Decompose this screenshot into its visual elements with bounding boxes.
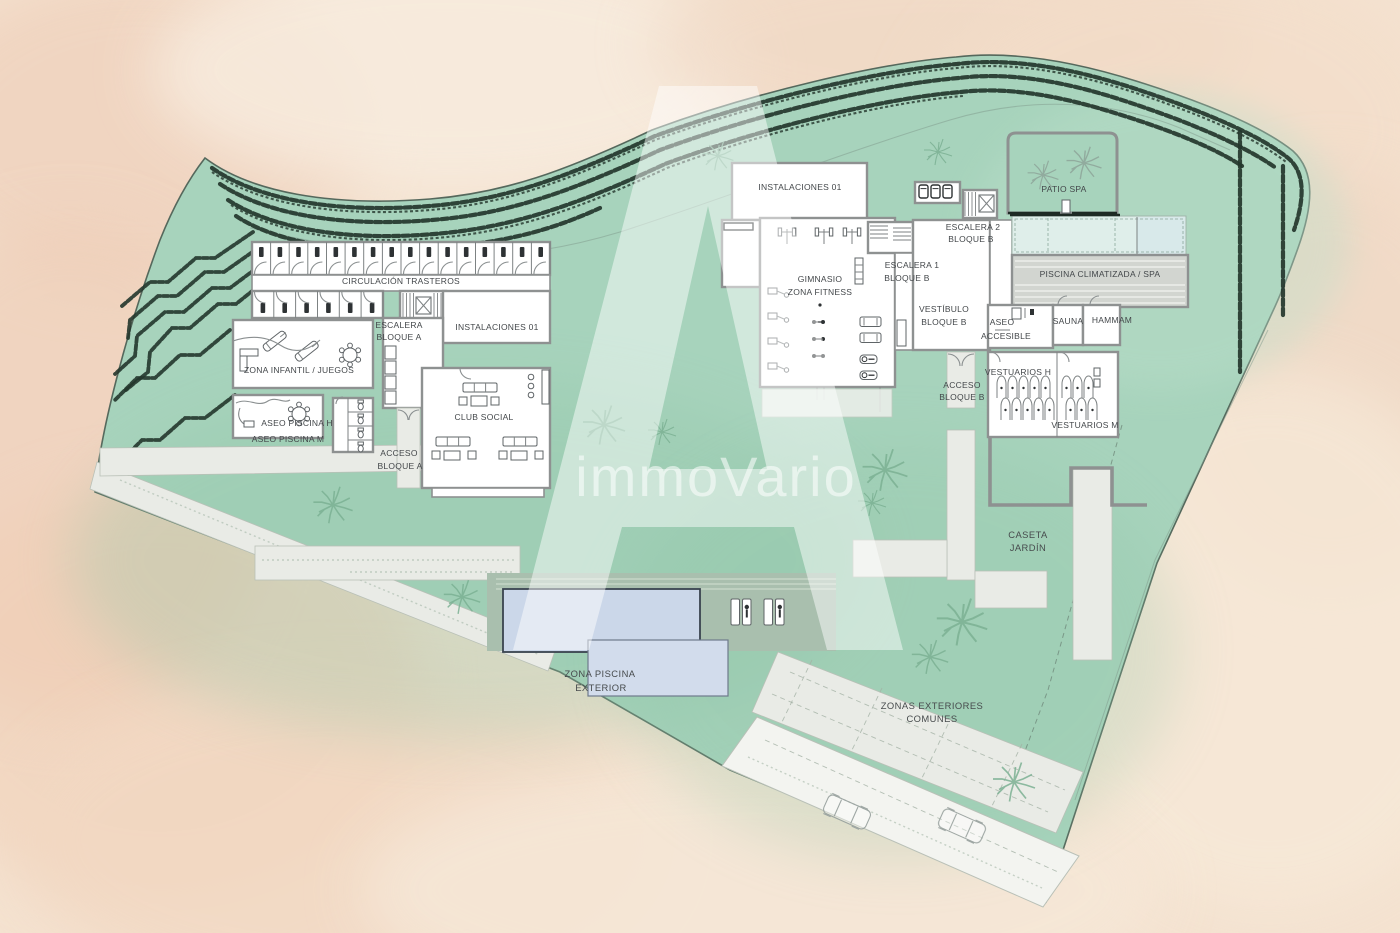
room-hammam [1083, 305, 1120, 345]
bench-icon [897, 320, 906, 346]
patio-gate [1062, 200, 1070, 213]
path-under-block-a [100, 445, 425, 476]
room-instalaciones-a [443, 291, 550, 343]
label-caseta-2: JARDÍN [1010, 542, 1047, 553]
label-escalera-a-1: ESCALERA [375, 320, 422, 330]
label-vestuarios-h: VESTUARIOS H [985, 367, 1051, 377]
bin-icons [919, 185, 952, 198]
indoor-pool-end [1137, 217, 1185, 254]
site-plan-canvas: immoVario CIRCULACIÓN TRASTEROS ESCALERA… [0, 0, 1400, 933]
label-vestibulo-1: VESTÍBULO [919, 304, 969, 314]
label-gimnasio-1: GIMNASIO [798, 274, 843, 284]
label-aseo-piscina-h: ASEO PISCINA H [261, 418, 333, 428]
path-caseta-south [975, 571, 1047, 608]
stairwell-1-block-b [868, 222, 913, 253]
label-instalaciones-b: INSTALACIONES 01 [758, 182, 841, 192]
room-piscina-climatizada [1012, 255, 1188, 307]
label-aseo-accesible-1: ASEO [990, 317, 1015, 327]
corridor-spa [990, 220, 1012, 305]
path-mid [255, 546, 520, 580]
label-club-social: CLUB SOCIAL [455, 412, 514, 422]
path-caseta-east [1073, 468, 1112, 660]
label-circulacion-trasteros: CIRCULACIÓN TRASTEROS [342, 276, 460, 286]
elevator-block-b-icon [979, 195, 994, 212]
label-acceso-a-2: BLOQUE A [378, 461, 423, 471]
label-zonas-exteriores-2: COMUNES [906, 713, 957, 724]
label-caseta-1: CASETA [1008, 529, 1048, 540]
label-acceso-b-2: BLOQUE B [939, 392, 985, 402]
label-aseo-piscina-m: ASEO PISCINA M [252, 434, 324, 444]
label-hammam: HAMMAM [1092, 315, 1132, 325]
label-acceso-a-1: ACCESO [380, 448, 418, 458]
label-escalera1-b-1: ESCALERA 1 [885, 260, 939, 270]
label-escalera2-b-1: ESCALERA 2 [946, 222, 1000, 232]
watermark-brand: immoVario [575, 445, 856, 508]
label-aseo-accesible-2: ACCESIBLE [981, 331, 1031, 341]
club-social-step [432, 488, 544, 497]
label-acceso-b-1: ACCESO [943, 380, 981, 390]
site-plan-svg: immoVario CIRCULACIÓN TRASTEROS ESCALERA… [0, 0, 1400, 933]
label-zona-infantil: ZONA INFANTIL / JUEGOS [244, 365, 354, 375]
label-vestuarios-m: VESTUARIOS M [1051, 420, 1118, 430]
label-vestibulo-2: BLOQUE B [921, 317, 967, 327]
label-zonas-exteriores-1: ZONAS EXTERIORES [881, 700, 984, 711]
label-patio-spa: PATIO SPA [1041, 184, 1086, 194]
label-instalaciones-a: INSTALACIONES 01 [455, 322, 538, 332]
label-piscina-climatizada: PISCINA CLIMATIZADA / SPA [1040, 269, 1161, 279]
path-acceso-b [947, 430, 975, 580]
label-sauna: SAUNA [1053, 316, 1084, 326]
label-escalera1-b-2: BLOQUE B [884, 273, 930, 283]
elevator-block-a-icon [416, 297, 431, 314]
label-escalera2-b-2: BLOQUE B [948, 234, 994, 244]
label-gimnasio-2: ZONA FITNESS [788, 287, 852, 297]
label-zona-piscina-2: EXTERIOR [575, 682, 627, 693]
label-escalera-a-2: BLOQUE A [377, 332, 422, 342]
label-zona-piscina-1: ZONA PISCINA [564, 668, 635, 679]
room-aseos-wc [333, 398, 373, 452]
